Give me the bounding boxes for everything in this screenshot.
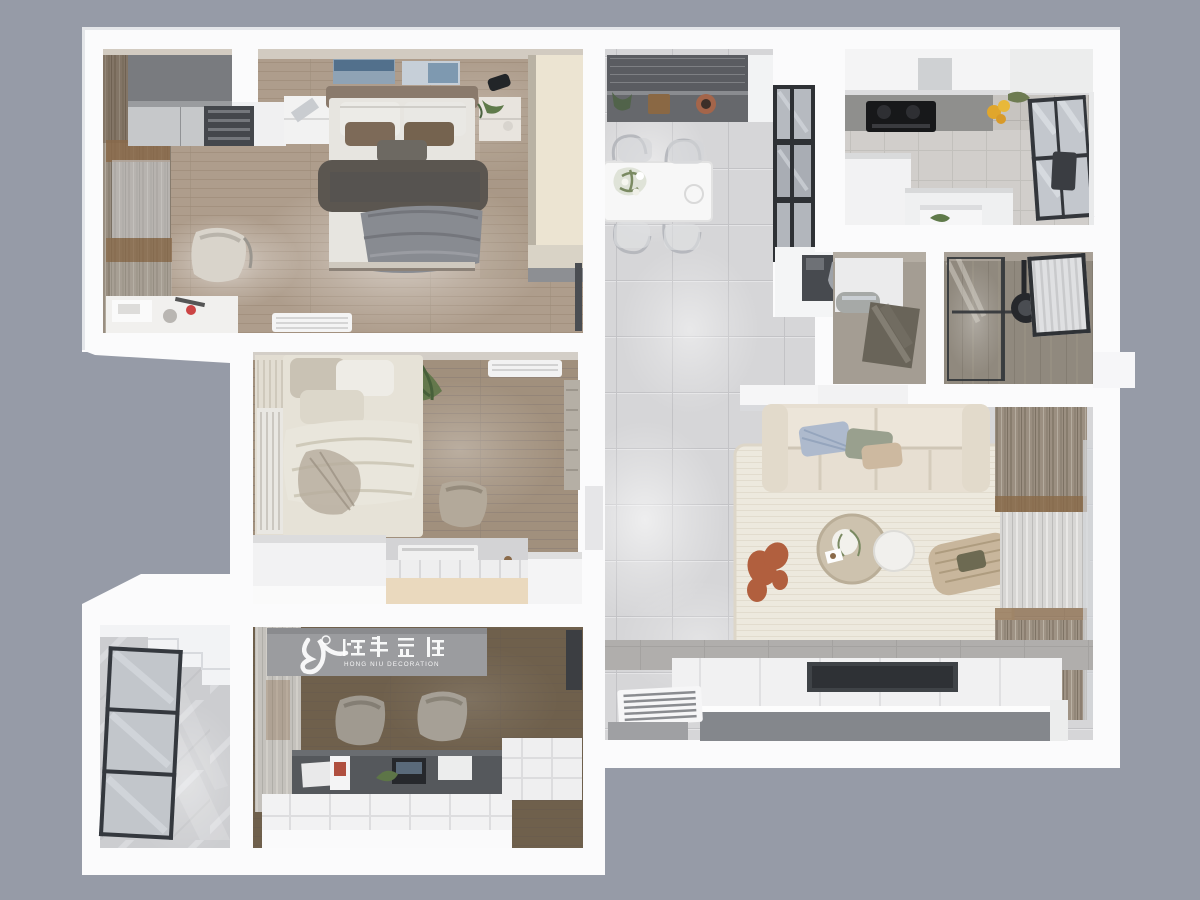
svg-text:HONG NIU DECORATION: HONG NIU DECORATION (344, 661, 440, 668)
